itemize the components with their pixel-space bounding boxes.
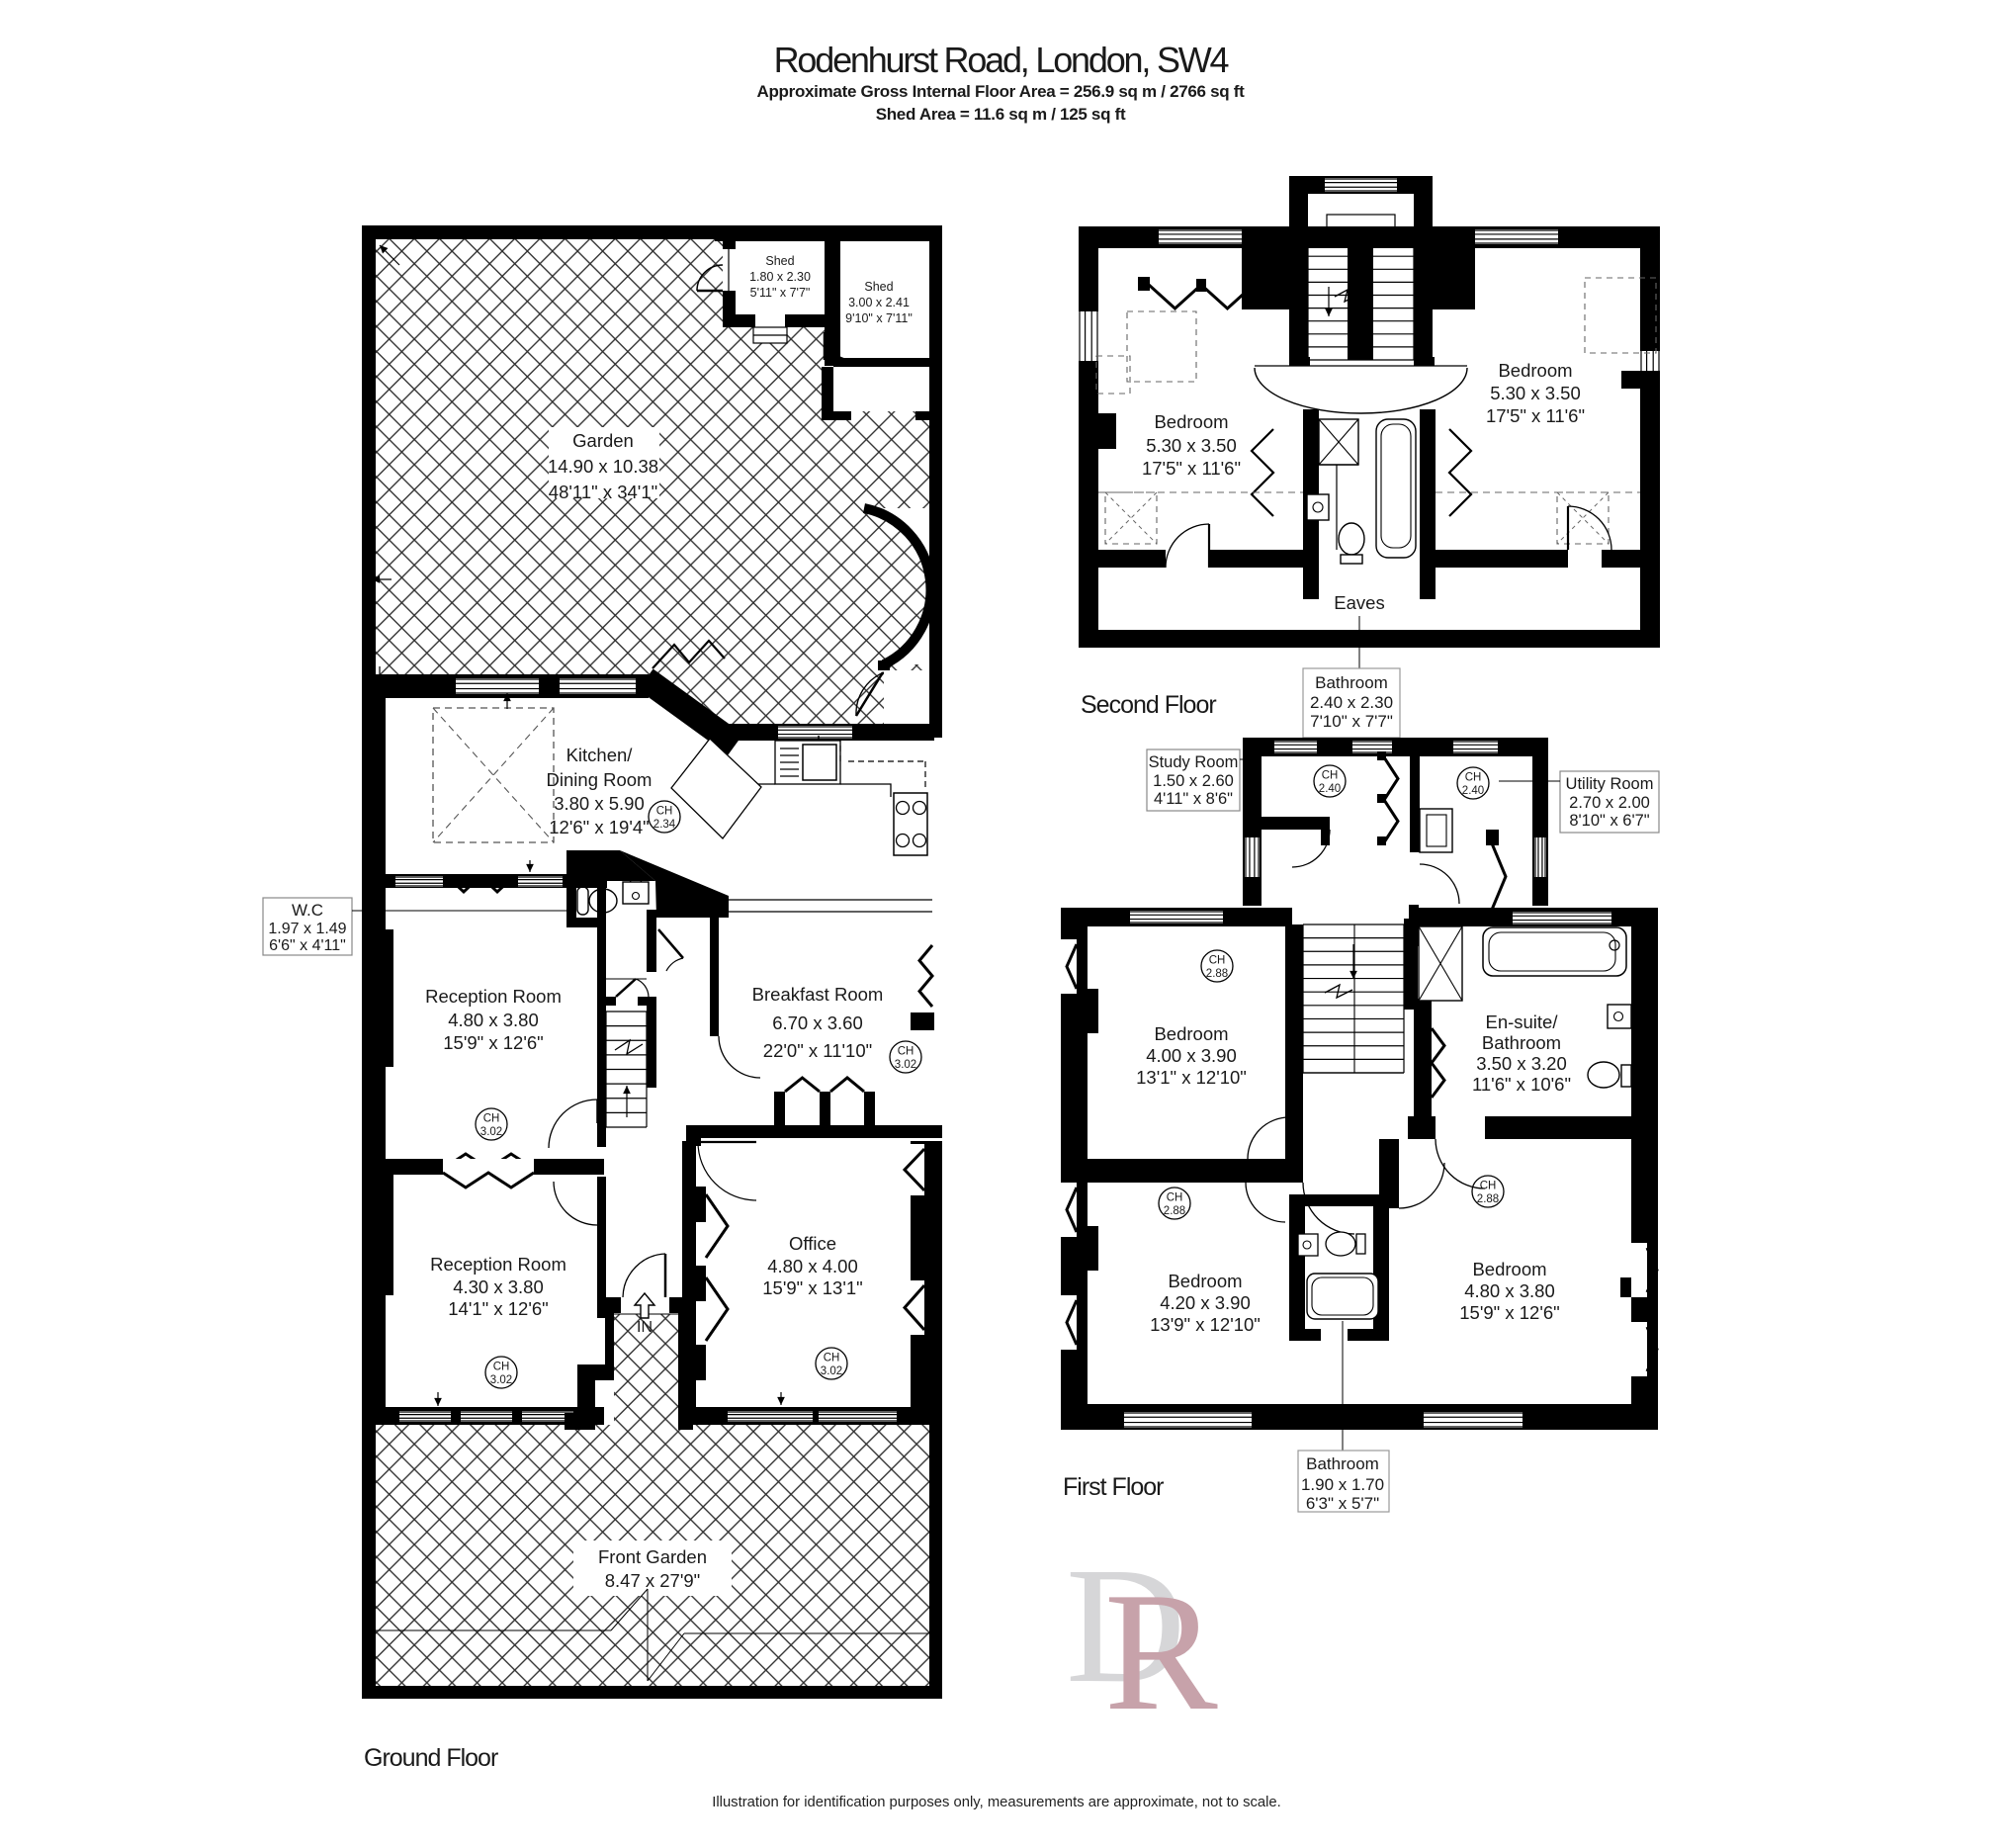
svg-text:First Floor: First Floor [1063,1473,1164,1501]
svg-text:CH: CH [493,1362,510,1373]
svg-text:CH: CH [824,1353,840,1364]
svg-text:3.02: 3.02 [895,1059,916,1071]
svg-text:4.80 x 3.80: 4.80 x 3.80 [448,1010,539,1030]
svg-text:6.70 x 3.60: 6.70 x 3.60 [772,1012,863,1033]
svg-text:Breakfast Room: Breakfast Room [752,984,884,1005]
svg-text:3.02: 3.02 [490,1374,512,1386]
svg-text:13'9" x 12'10": 13'9" x 12'10" [1150,1314,1261,1335]
svg-text:Bedroom: Bedroom [1168,1271,1242,1291]
svg-text:Illustration for identificatio: Illustration for identification purposes… [712,1795,1280,1810]
svg-text:7'10" x 7'7": 7'10" x 7'7" [1310,712,1393,731]
svg-text:11'6" x 10'6": 11'6" x 10'6" [1472,1074,1571,1095]
svg-text:4'11" x 8'6": 4'11" x 8'6" [1154,790,1233,808]
svg-text:6'3" x 5'7": 6'3" x 5'7" [1306,1494,1379,1513]
svg-text:Kitchen/: Kitchen/ [566,745,634,765]
svg-text:14'1" x 12'6": 14'1" x 12'6" [448,1298,548,1319]
svg-text:1.90 x 1.70: 1.90 x 1.70 [1301,1475,1384,1494]
svg-text:1.97 x 1.49: 1.97 x 1.49 [268,921,346,937]
svg-text:Reception Room: Reception Room [425,986,562,1007]
svg-text:CH: CH [1465,772,1482,784]
svg-text:Bathroom: Bathroom [1306,1454,1379,1473]
svg-text:CH: CH [898,1046,914,1058]
svg-text:IN: IN [637,1319,653,1336]
svg-text:Utility Room: Utility Room [1566,775,1654,793]
svg-text:8.47 x 27'9": 8.47 x 27'9" [605,1570,701,1591]
svg-text:4.80 x 4.00: 4.80 x 4.00 [767,1256,858,1276]
svg-text:4.30 x 3.80: 4.30 x 3.80 [453,1276,544,1297]
svg-text:17'5" x 11'6": 17'5" x 11'6" [1486,405,1585,426]
svg-text:R: R [1104,1558,1218,1746]
svg-text:CH: CH [1480,1181,1497,1192]
svg-text:5'11" x 7'7": 5'11" x 7'7" [750,286,811,300]
svg-text:6'6" x 4'11": 6'6" x 4'11" [269,937,346,954]
svg-text:1.80 x 2.30: 1.80 x 2.30 [749,270,811,284]
svg-text:1.50 x 2.60: 1.50 x 2.60 [1153,772,1234,790]
svg-text:Rodenhurst Road, London, SW4: Rodenhurst Road, London, SW4 [774,40,1229,80]
svg-text:5.30 x 3.50: 5.30 x 3.50 [1146,435,1237,456]
svg-text:15'9" x 12'6": 15'9" x 12'6" [443,1032,543,1053]
svg-text:Study Room: Study Room [1149,753,1239,771]
svg-text:4.00 x 3.90: 4.00 x 3.90 [1146,1045,1237,1066]
svg-text:13'1" x 12'10": 13'1" x 12'10" [1136,1067,1247,1088]
svg-text:Bathroom: Bathroom [1482,1032,1561,1053]
svg-text:3.02: 3.02 [480,1126,502,1138]
svg-text:2.40: 2.40 [1319,783,1341,795]
svg-text:2.40: 2.40 [1462,785,1484,797]
svg-text:Bedroom: Bedroom [1154,411,1228,432]
svg-text:3.02: 3.02 [821,1365,842,1377]
svg-text:Bedroom: Bedroom [1472,1259,1546,1279]
svg-text:12'6" x 19'4": 12'6" x 19'4" [549,817,649,837]
svg-text:Reception Room: Reception Room [430,1254,566,1275]
svg-text:14.90 x 10.38: 14.90 x 10.38 [548,456,658,477]
svg-text:2.88: 2.88 [1164,1205,1185,1217]
svg-text:4.80 x 3.80: 4.80 x 3.80 [1464,1280,1555,1301]
svg-text:Bedroom: Bedroom [1498,360,1572,381]
svg-text:2.40 x 2.30: 2.40 x 2.30 [1310,693,1393,712]
svg-text:Shed: Shed [864,280,893,294]
svg-text:Shed: Shed [765,254,794,268]
svg-text:Ground Floor: Ground Floor [364,1744,498,1772]
svg-text:Bathroom: Bathroom [1315,673,1388,692]
svg-text:Second Floor: Second Floor [1081,691,1216,719]
svg-text:Front Garden: Front Garden [598,1546,707,1567]
svg-text:Dining Room: Dining Room [547,769,653,790]
svg-text:3.80 x 5.90: 3.80 x 5.90 [554,793,645,814]
svg-text:8'10" x 6'7": 8'10" x 6'7" [1569,812,1649,830]
svg-text:2.70 x 2.00: 2.70 x 2.00 [1569,794,1650,812]
svg-text:Approximate Gross Internal Flo: Approximate Gross Internal Floor Area = … [756,82,1245,101]
svg-text:9'10" x 7'11": 9'10" x 7'11" [845,311,913,325]
svg-text:CH: CH [656,806,673,818]
svg-text:CH: CH [1322,770,1339,782]
svg-text:22'0" x 11'10": 22'0" x 11'10" [763,1040,872,1061]
svg-text:Garden: Garden [572,430,634,451]
svg-text:En-suite/: En-suite/ [1485,1012,1558,1032]
svg-text:5.30 x 3.50: 5.30 x 3.50 [1490,383,1581,403]
svg-text:3.00 x 2.41: 3.00 x 2.41 [848,296,910,309]
svg-text:15'9" x 13'1": 15'9" x 13'1" [762,1277,862,1298]
svg-text:Shed Area = 11.6 sq m / 125 sq: Shed Area = 11.6 sq m / 125 sq ft [876,105,1126,124]
svg-text:2.88: 2.88 [1206,968,1228,980]
svg-text:Eaves: Eaves [1334,592,1384,613]
svg-text:2.88: 2.88 [1477,1193,1499,1205]
svg-text:3.50 x 3.20: 3.50 x 3.20 [1476,1053,1567,1074]
svg-text:CH: CH [483,1113,500,1125]
svg-text:Bedroom: Bedroom [1154,1023,1228,1044]
svg-text:2.34: 2.34 [653,819,676,831]
svg-text:Office: Office [789,1233,836,1254]
svg-text:W.C: W.C [292,901,323,920]
svg-text:48'11" x 34'1": 48'11" x 34'1" [549,482,657,502]
svg-text:CH: CH [1167,1192,1183,1204]
svg-text:17'5" x 11'6": 17'5" x 11'6" [1142,458,1241,479]
svg-text:15'9" x 12'6": 15'9" x 12'6" [1459,1302,1559,1323]
svg-text:CH: CH [1209,955,1226,967]
svg-text:4.20 x 3.90: 4.20 x 3.90 [1160,1292,1251,1313]
